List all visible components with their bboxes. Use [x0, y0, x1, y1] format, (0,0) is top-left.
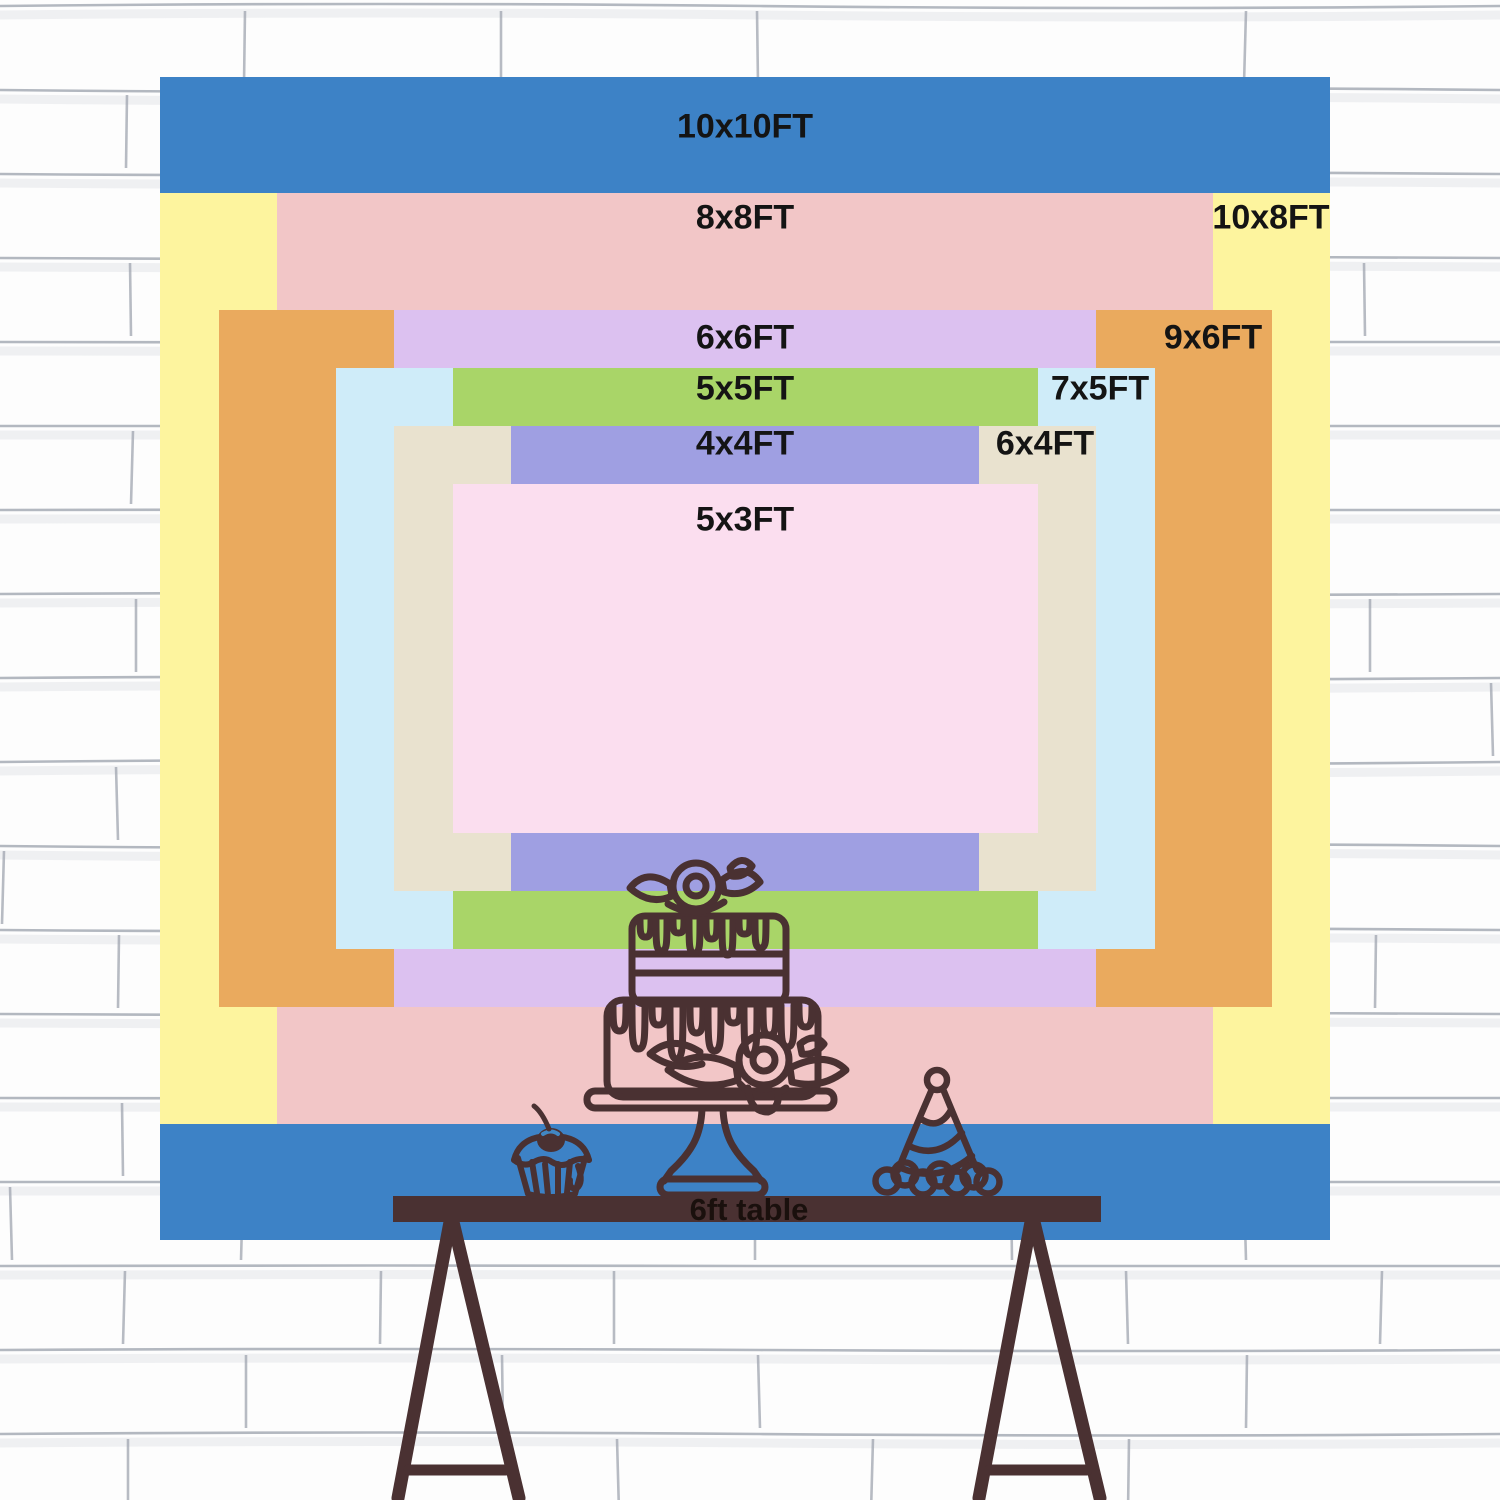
cake-doodle	[587, 860, 846, 1195]
cupcake-doodle	[514, 1106, 589, 1197]
party-hat-trim	[876, 1163, 1000, 1195]
party-hat-doodle	[876, 1070, 1000, 1195]
table	[393, 1196, 1101, 1498]
table-trestle-legs	[398, 1222, 1100, 1498]
cake-top-rose	[630, 860, 760, 911]
backdrop-size-chart-page: 10x10FT10x8FT8x8FT9x6FT6x6FT7x5FT5x5FT6x…	[0, 0, 1500, 1500]
cake-top-drips	[640, 920, 766, 955]
table-length-label: 6ft table	[690, 1192, 809, 1228]
cake-bottom-drips	[613, 1005, 812, 1059]
table-scene-illustration	[0, 0, 1500, 1500]
